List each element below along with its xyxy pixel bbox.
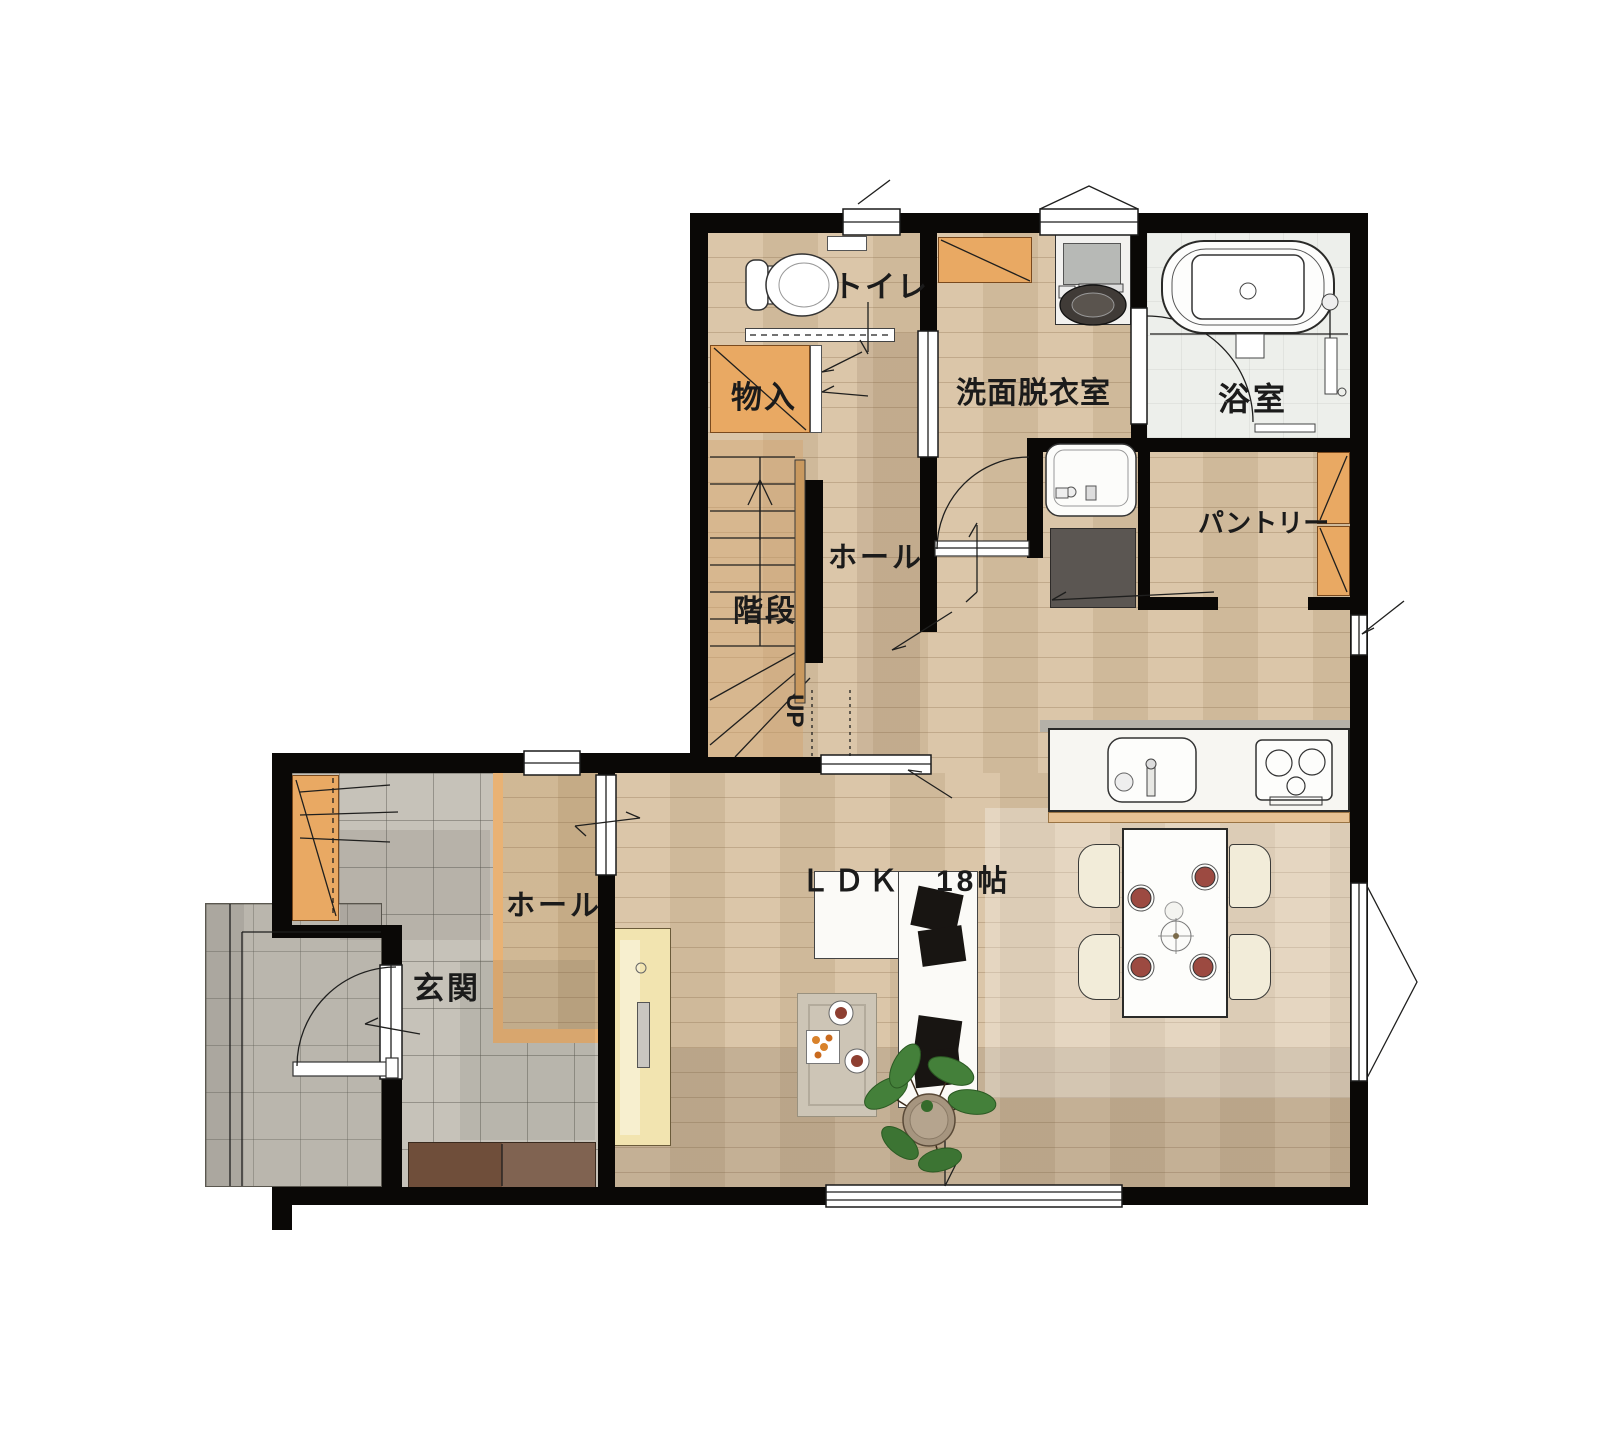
dining-chair-4 bbox=[1229, 934, 1271, 1000]
dining-chair-1 bbox=[1078, 844, 1120, 908]
wall-entrance-left bbox=[272, 753, 292, 938]
wall-pantry-bottom-right bbox=[1308, 597, 1350, 610]
tv-board-handle bbox=[637, 1002, 650, 1068]
shoe-cabinet-right bbox=[502, 1143, 595, 1187]
label-pantry: パントリー bbox=[1198, 503, 1329, 540]
dining-chair-3 bbox=[1229, 844, 1271, 908]
wall-right bbox=[1350, 213, 1368, 1205]
living-tray bbox=[806, 1030, 840, 1064]
toilet-window-ledge bbox=[827, 236, 867, 251]
toilet-shelf bbox=[745, 328, 895, 342]
label-storage: 物入 bbox=[731, 372, 797, 417]
storage-closet-door bbox=[810, 345, 822, 433]
wall-door-stub-top bbox=[382, 938, 402, 970]
wall-bottom bbox=[272, 1187, 1368, 1205]
wall-hall-ldk bbox=[598, 773, 615, 1187]
floor-plan: トイレ 物入 洗面脱衣室 浴室 パントリー ホール 階段 UP ホール 玄関 Ｌ… bbox=[0, 0, 1619, 1431]
wall-door-stub-bottom bbox=[382, 1079, 402, 1189]
wall-bottom-stub bbox=[272, 1205, 292, 1230]
wall-washroom-bottom bbox=[1027, 438, 1350, 452]
kitchen-counter bbox=[1048, 728, 1350, 812]
wall-entrance-bottom-left bbox=[272, 925, 402, 938]
wall-bath-divider bbox=[1131, 233, 1147, 438]
wall-top bbox=[690, 213, 1368, 233]
dining-table bbox=[1122, 828, 1228, 1018]
label-up: UP bbox=[780, 694, 808, 727]
wall-pantry-left bbox=[1138, 452, 1150, 610]
label-washroom: 洗面脱衣室 bbox=[956, 368, 1111, 412]
wall-entrance-top bbox=[272, 753, 708, 773]
entrance-shoe-closet bbox=[292, 775, 339, 921]
sofa-cushion-2 bbox=[918, 925, 967, 967]
step-edge-bottom bbox=[493, 1029, 598, 1043]
label-toilet: トイレ bbox=[833, 262, 929, 306]
dining-chair-2 bbox=[1078, 934, 1120, 1000]
step-edge-left bbox=[493, 773, 503, 1043]
label-stairs: 階段 bbox=[733, 586, 797, 630]
wall-left-upper bbox=[690, 213, 708, 773]
kitchen-toe-kick bbox=[1048, 812, 1350, 823]
label-ldk: ＬＤＫ 18帖 bbox=[800, 856, 1011, 900]
washroom-counter bbox=[938, 237, 1032, 283]
wall-basin-nook bbox=[1027, 452, 1043, 558]
floor-porch bbox=[205, 903, 382, 1187]
wall-pantry-bottom-left bbox=[1138, 597, 1218, 610]
washing-machine-lid bbox=[1063, 243, 1121, 285]
label-hall-upper: ホール bbox=[828, 534, 924, 576]
sofa-cushion-4 bbox=[912, 1048, 962, 1089]
label-bathroom: 浴室 bbox=[1218, 374, 1288, 420]
refrigerator bbox=[1050, 528, 1136, 608]
wall-stairs-side bbox=[803, 480, 823, 663]
wall-stairs-bottom bbox=[690, 757, 823, 773]
label-hall-lower: ホール bbox=[506, 882, 602, 924]
label-entrance: 玄関 bbox=[413, 963, 481, 1008]
